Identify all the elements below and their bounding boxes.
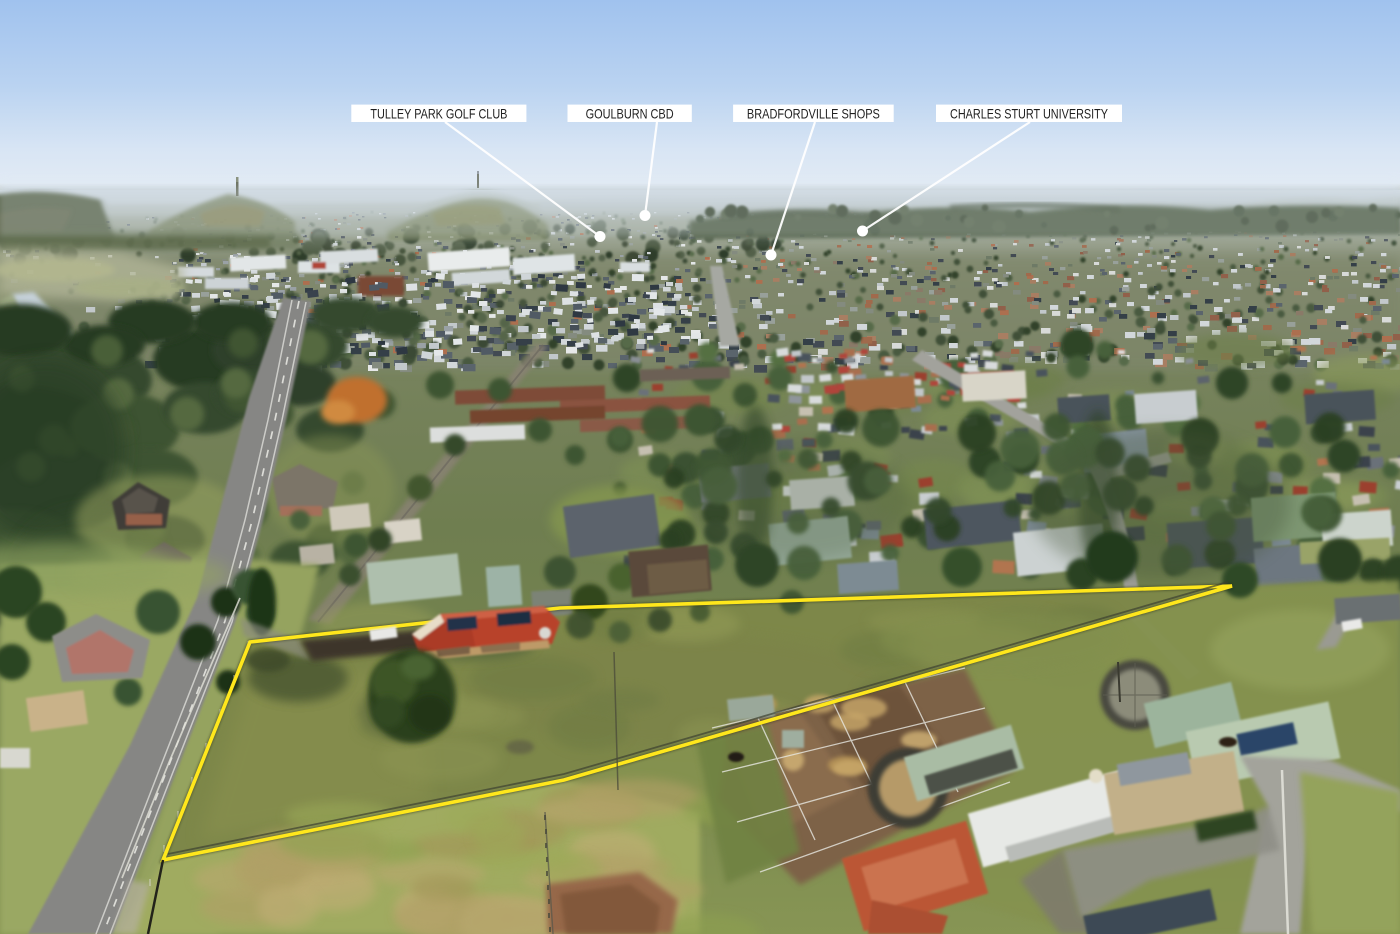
svg-text:GOULBURN CBD: GOULBURN CBD xyxy=(586,107,674,122)
svg-text:CHARLES STURT UNIVERSITY: CHARLES STURT UNIVERSITY xyxy=(950,107,1108,122)
svg-text:BRADFORDVILLE SHOPS: BRADFORDVILLE SHOPS xyxy=(747,107,880,122)
svg-text:TULLEY PARK GOLF CLUB: TULLEY PARK GOLF CLUB xyxy=(370,107,507,122)
